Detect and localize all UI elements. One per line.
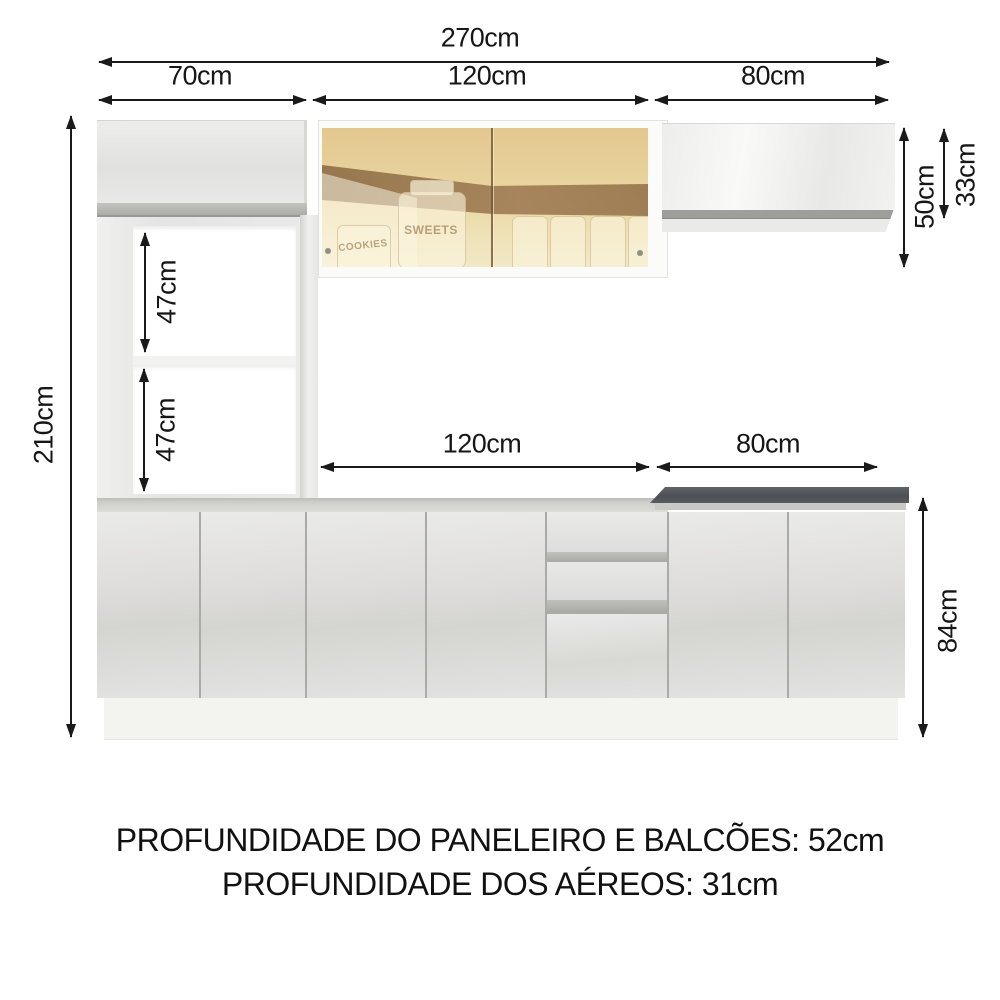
dim-label-counter-mid: 120cm (443, 429, 522, 460)
jar-sweets-lid (410, 180, 454, 196)
countertop-dark-edge (655, 503, 906, 510)
base-door (427, 512, 545, 698)
jar-small (512, 216, 548, 267)
jar-sweets-label: SWEETS (404, 223, 458, 237)
dim-label-aerial-height: 33cm (951, 143, 982, 207)
base-door (97, 512, 199, 698)
pantry-side-column (300, 215, 318, 498)
dim-label-base-height: 84cm (933, 589, 964, 653)
base-door (307, 512, 425, 698)
glass-doors: COOKIES SWEETS (322, 128, 648, 267)
countertop-dark (650, 487, 909, 503)
dim-label-niche-lower: 47cm (151, 398, 182, 462)
glass-door-knob-left (325, 248, 331, 254)
aerial-cabinet-right (662, 123, 895, 232)
toe-kick (104, 698, 898, 740)
dim-label-total-width: 270cm (441, 23, 520, 54)
jar-small (628, 216, 648, 267)
drawer-front-1 (547, 512, 667, 552)
pantry-top-door (97, 120, 307, 205)
jar-small (590, 216, 626, 267)
dim-label-pantry-width: 70cm (168, 61, 232, 92)
base-door (669, 512, 787, 698)
glass-door-split (491, 128, 493, 267)
pantry-top-handle (97, 203, 307, 217)
base-door (201, 512, 305, 698)
base-cabinets (97, 512, 905, 698)
dim-label-niche-upper: 47cm (152, 260, 183, 324)
aerial-door (662, 123, 895, 210)
drawer-handle-2 (547, 600, 667, 612)
drawer-unit-door (547, 614, 667, 698)
dim-label-hood-height: 50cm (910, 165, 941, 229)
aerial-bottom (662, 219, 895, 232)
dim-label-total-height: 210cm (29, 386, 60, 465)
dim-label-hood-width: 120cm (448, 61, 527, 92)
drawer-front-2 (547, 562, 667, 600)
aerial-handle (662, 210, 895, 219)
glass-door-knob-right (637, 250, 643, 256)
counter-strip-light (97, 498, 668, 512)
depth-note-pantry-counters: PROFUNDIDADE DO PANELEIRO E BALCÕES: 52c… (0, 822, 1000, 859)
base-door (789, 512, 905, 698)
drawer-unit (547, 512, 667, 698)
dim-label-aerial-width: 80cm (741, 61, 805, 92)
jar-small (550, 216, 586, 267)
depth-note-aerials: PROFUNDIDADE DOS AÉREOS: 31cm (0, 866, 1000, 903)
pantry-top-cabinet (97, 120, 307, 217)
dim-label-counter-right: 80cm (736, 429, 800, 460)
kitchen-dimension-diagram: COOKIES SWEETS (0, 0, 1000, 1000)
drawer-handle-1 (547, 552, 667, 562)
